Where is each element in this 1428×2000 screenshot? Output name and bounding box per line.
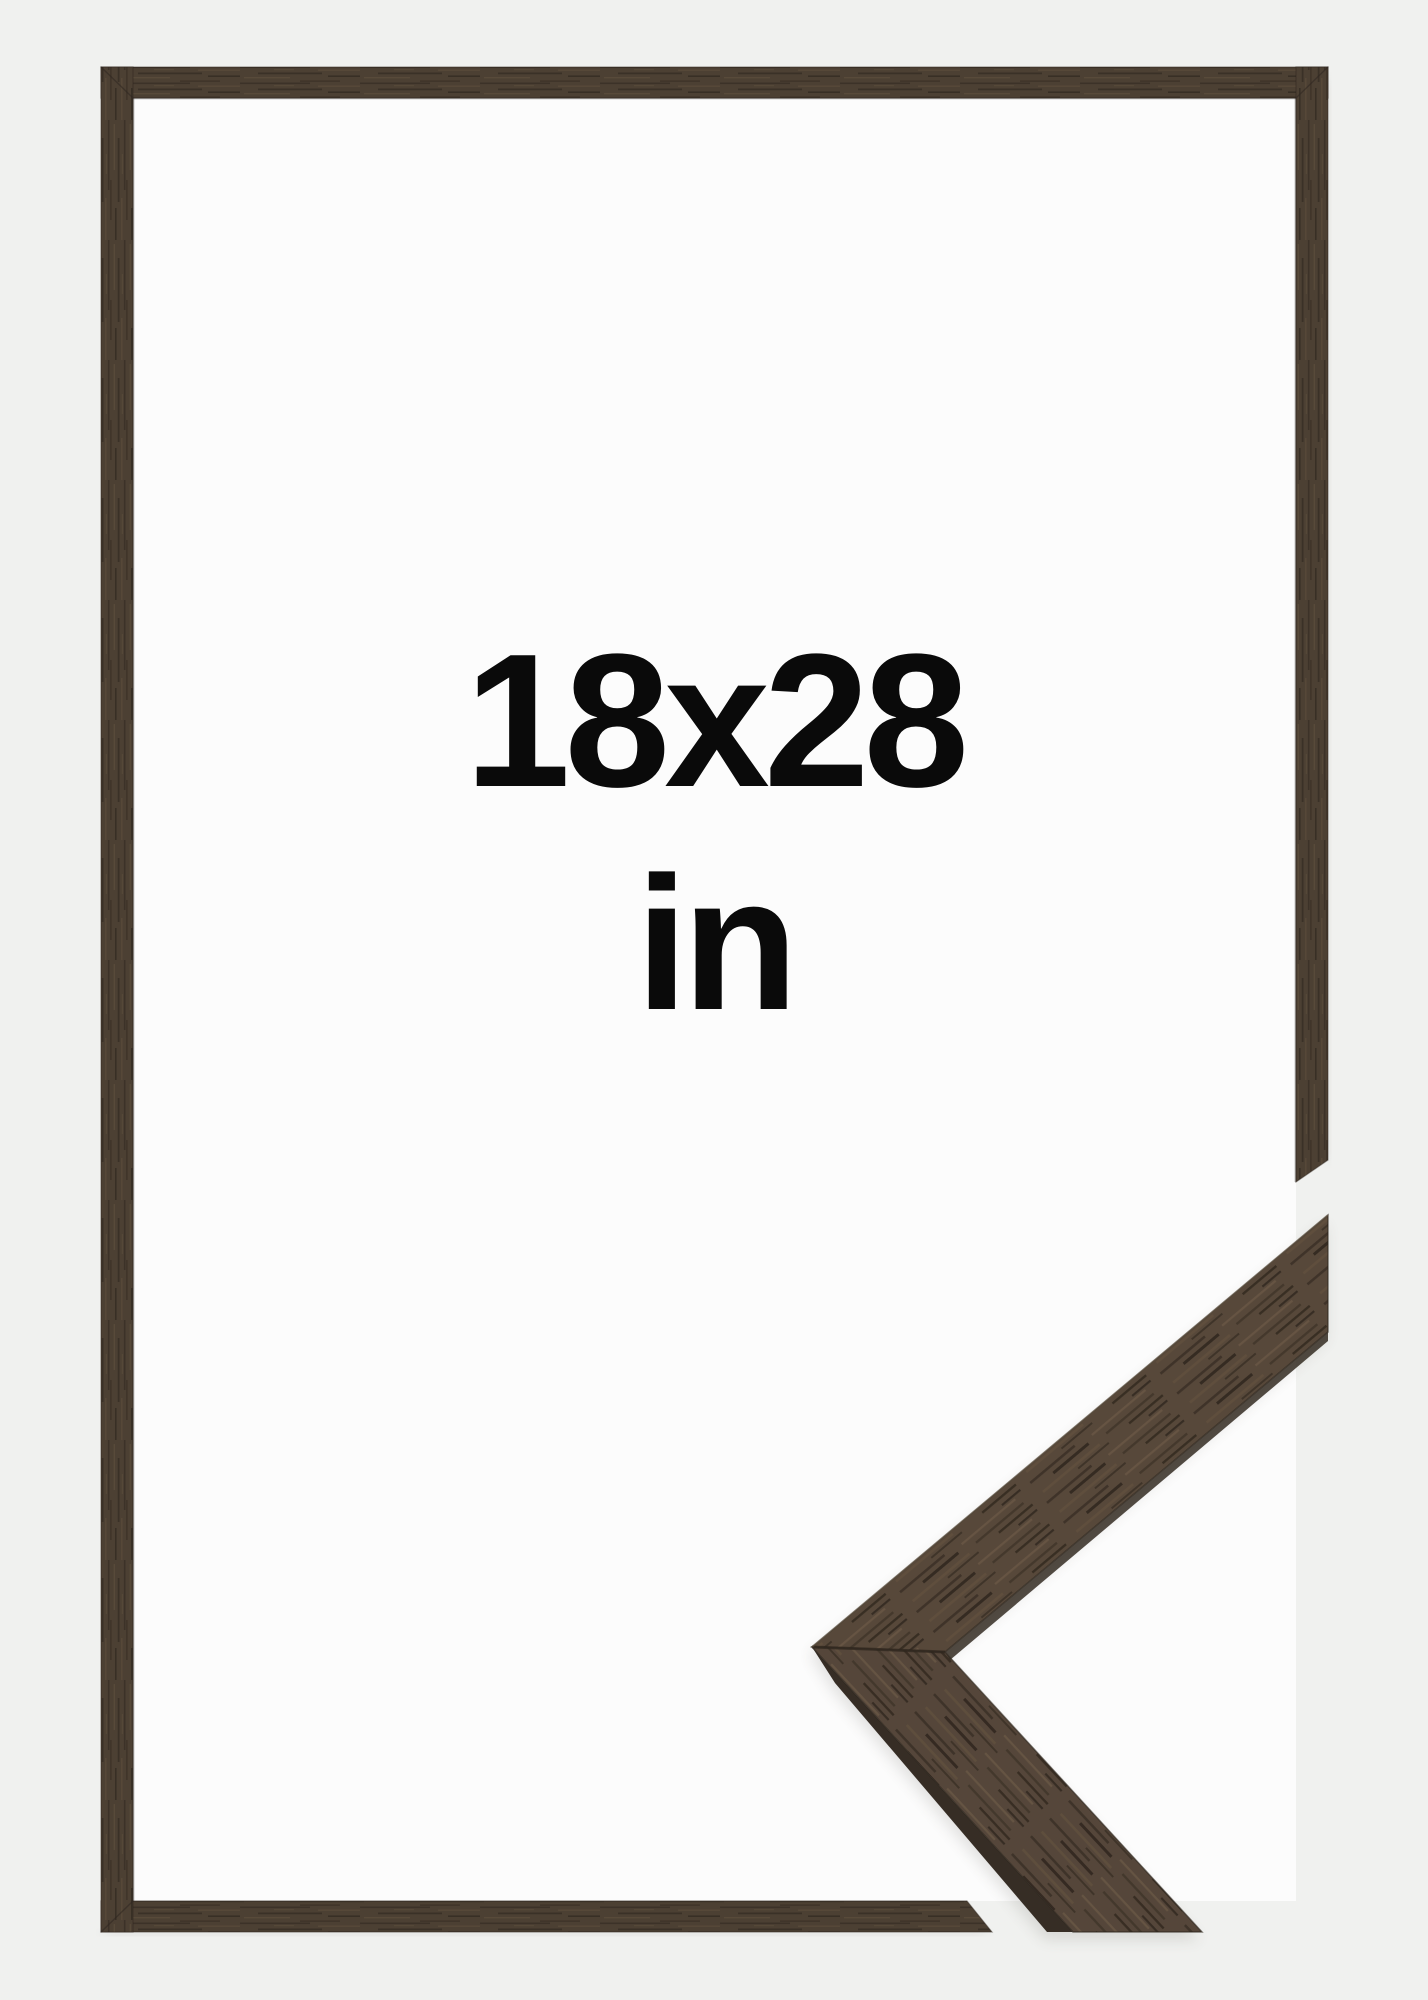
- frame-top-bar: [101, 67, 1328, 98]
- product-image-frame: 18x28 in: [0, 0, 1428, 2000]
- frame-bottom-bar: [101, 1901, 992, 1932]
- size-caption: 18x28 in: [0, 610, 1428, 1056]
- size-label: 18x28: [0, 610, 1428, 833]
- unit-label: in: [0, 833, 1428, 1056]
